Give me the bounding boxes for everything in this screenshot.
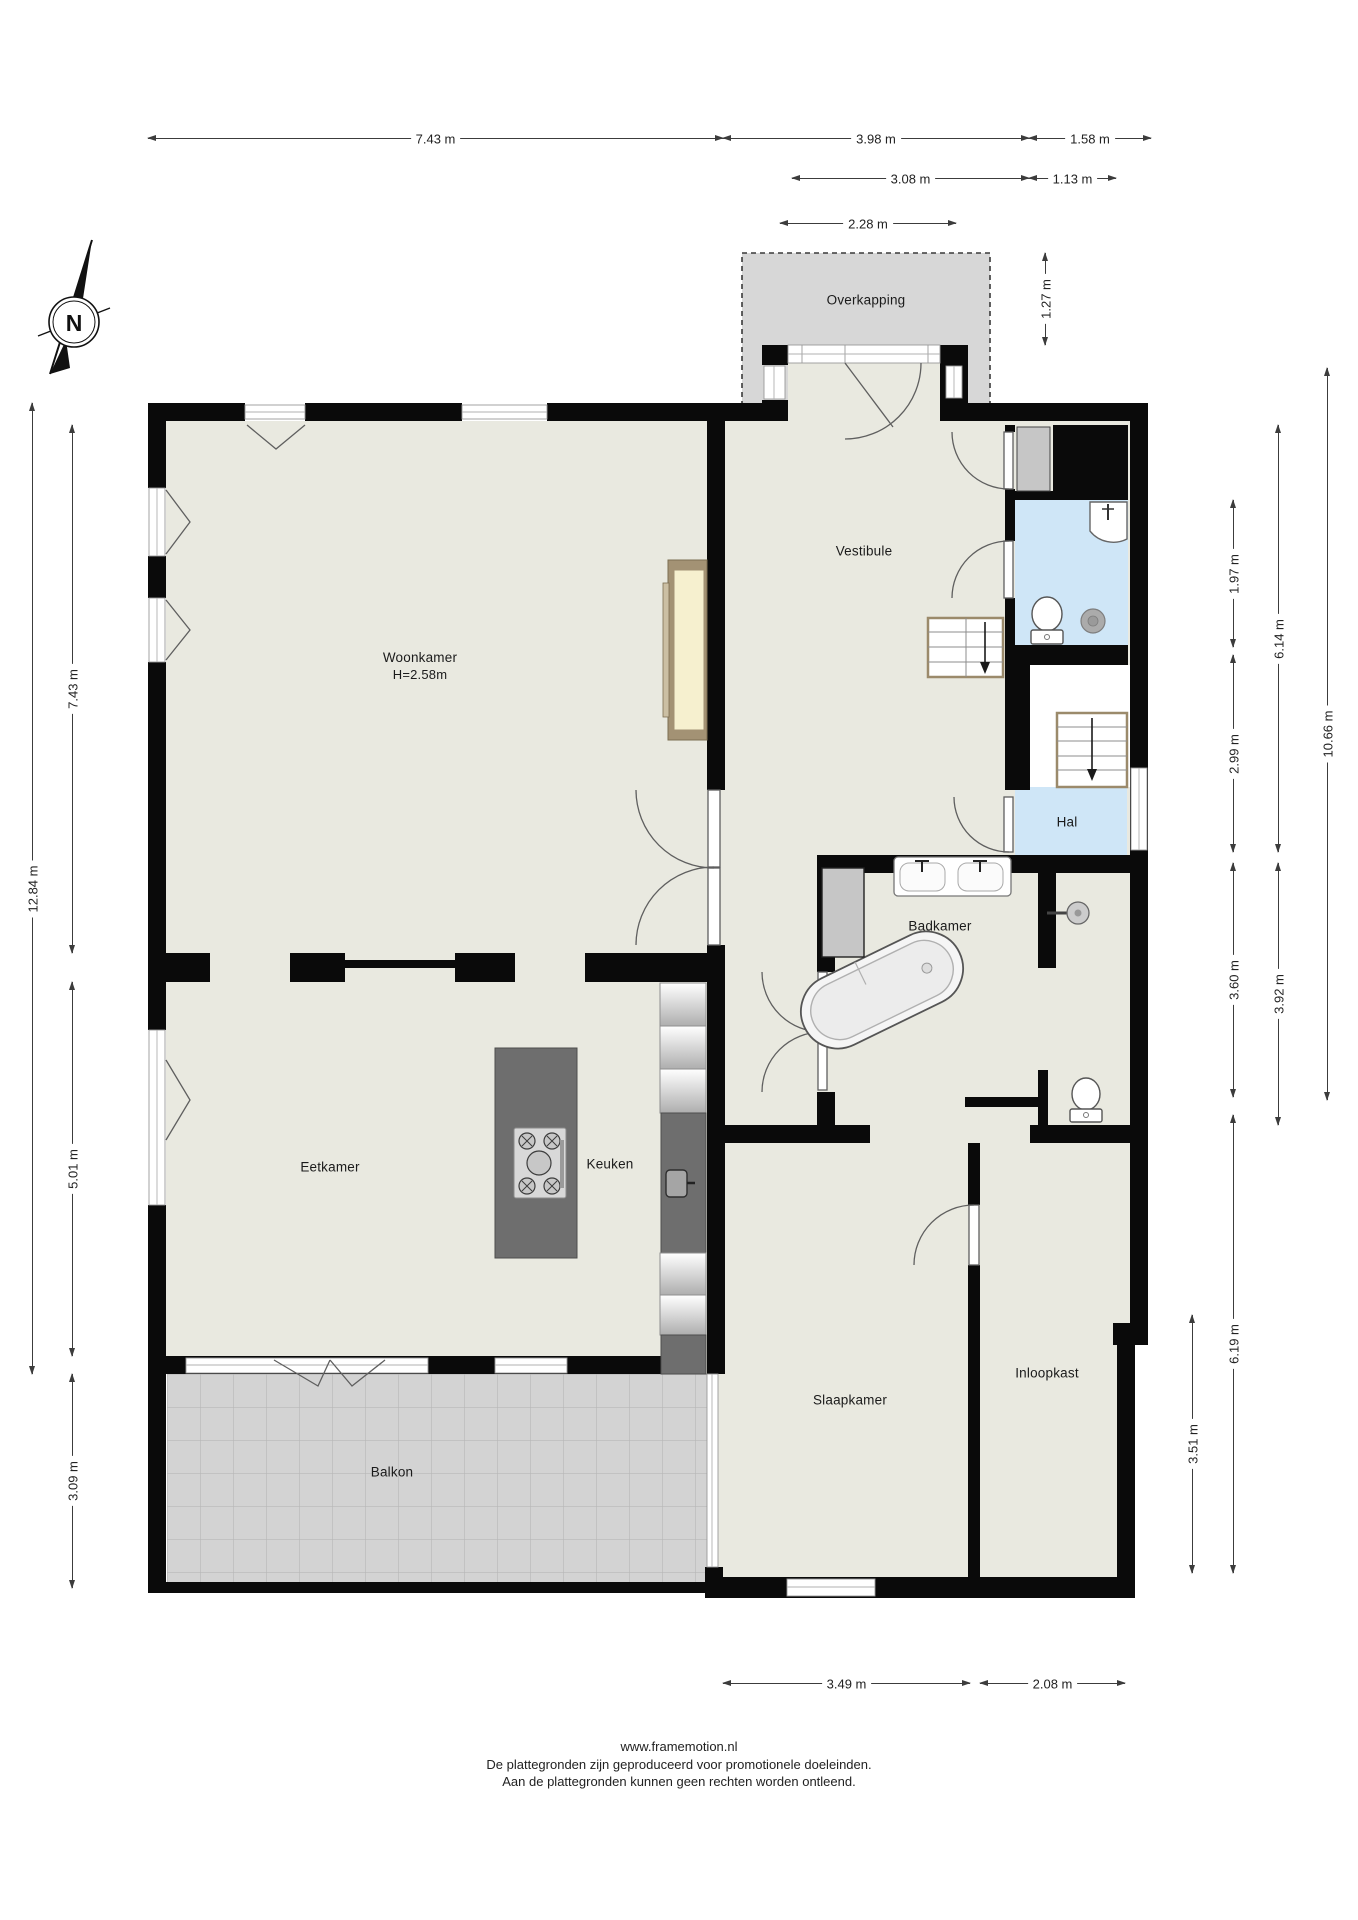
window-north-1 [245, 405, 305, 419]
kitchen-island [495, 1048, 577, 1258]
window-west-2 [149, 598, 165, 662]
entry-closet [1017, 427, 1050, 491]
entry-door-band [788, 345, 940, 363]
footer-line: De plattegronden zijn geproduceerd voor … [0, 1756, 1358, 1774]
toilet-2 [1070, 1078, 1102, 1122]
window-hal-east [1131, 768, 1147, 850]
fireplace [663, 560, 707, 740]
window-south-slaapkamer [787, 1579, 875, 1596]
balcony-tiles [167, 1374, 707, 1582]
double-sink [894, 857, 1011, 896]
window-vestibule-west [764, 366, 785, 399]
floorplan: N [0, 0, 1358, 1920]
compass-icon: N [38, 240, 110, 374]
footer-line: www.framemotion.nl [0, 1738, 1358, 1756]
toilet-room-sink [1090, 502, 1127, 542]
footer-disclaimer: www.framemotion.nlDe plattegronden zijn … [0, 1738, 1358, 1791]
floorplan-drawing: N [0, 0, 1358, 1920]
hal-floor [1015, 787, 1127, 855]
window-south-eetkamer-2 [495, 1358, 567, 1373]
window-south-eetkamer-1 [186, 1358, 428, 1373]
toilet-1 [1031, 597, 1063, 644]
stairs-vestibule [928, 618, 1003, 677]
balcony-railing-window [707, 1374, 718, 1567]
window-west-1 [149, 488, 165, 556]
footer-line: Aan de plattegronden kunnen geen rechten… [0, 1773, 1358, 1791]
kitchen-wall-cabinets [660, 983, 706, 1374]
stairs-hal [1057, 713, 1127, 787]
window-vestibule-east [946, 366, 962, 398]
svg-text:N: N [66, 310, 83, 336]
window-west-3 [149, 1030, 165, 1205]
bathroom-closet [822, 868, 864, 957]
window-north-2 [462, 405, 547, 419]
